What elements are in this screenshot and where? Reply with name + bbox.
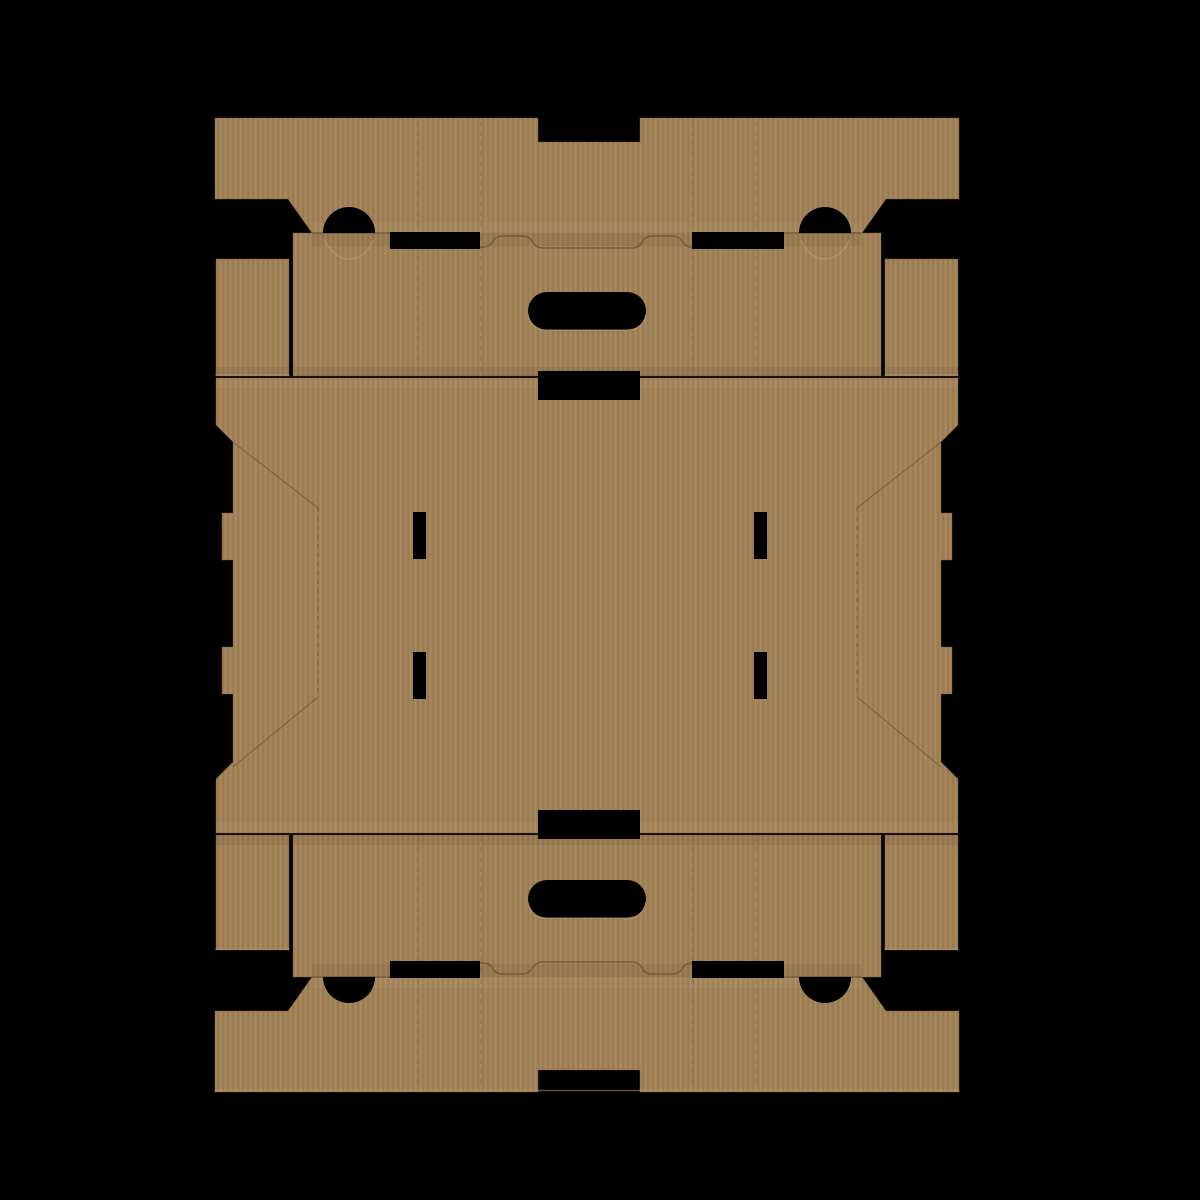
cardboard-dieline-render: [0, 0, 1200, 1200]
base-panel: [216, 378, 958, 833]
bottom-lid-flap-sheet: [215, 835, 959, 1092]
render-canvas: [0, 0, 1200, 1200]
cardboard-pieces: [215, 118, 959, 1092]
top-lid-flap-sheet: [215, 118, 959, 376]
